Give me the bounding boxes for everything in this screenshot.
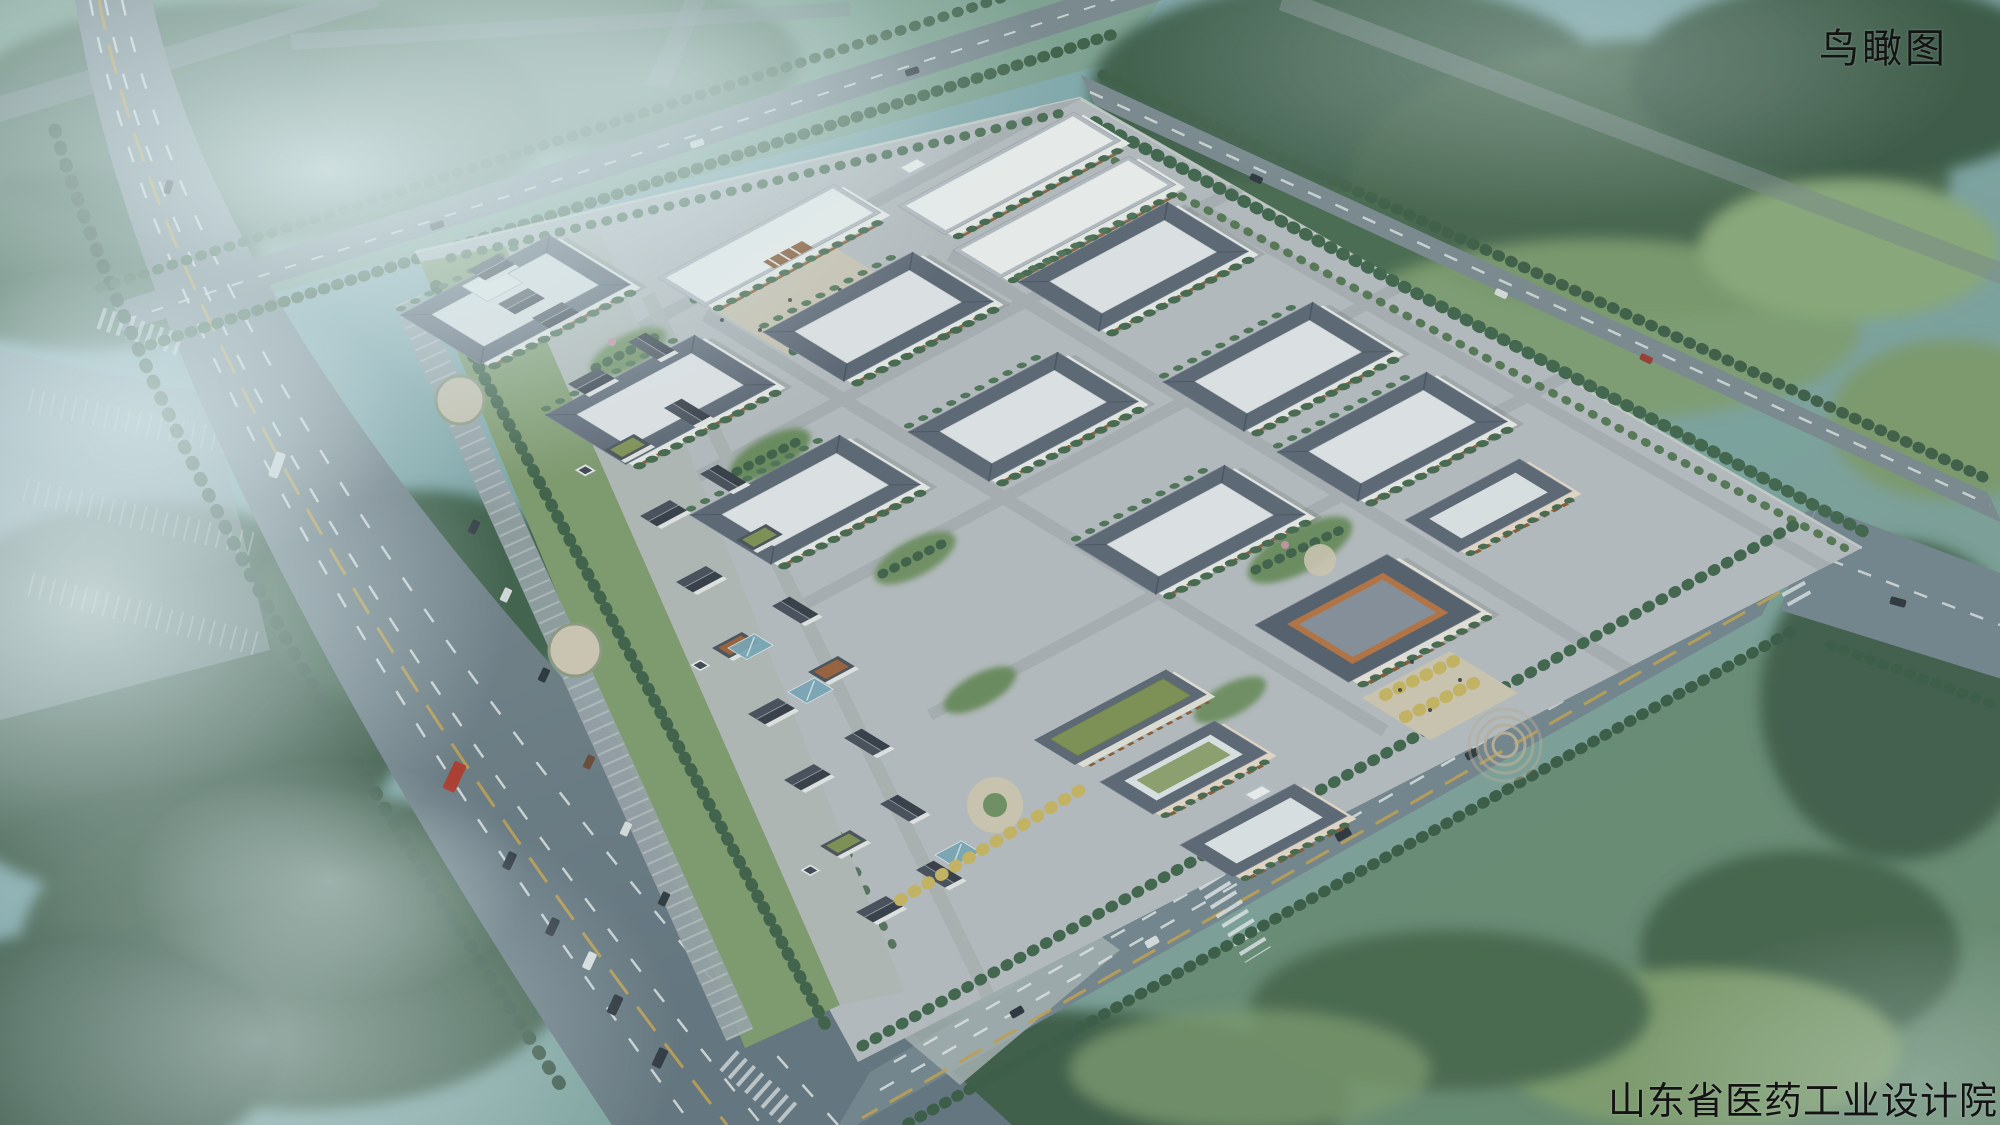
scene-canvas [0,0,2000,1125]
atmosphere-fog [0,0,2000,1125]
aerial-rendering: 鸟瞰图 山东省医药工业设计院 [0,0,2000,1125]
design-institute-credit: 山东省医药工业设计院 [1608,1070,1998,1125]
view-title-label: 鸟瞰图 [1819,16,1948,74]
